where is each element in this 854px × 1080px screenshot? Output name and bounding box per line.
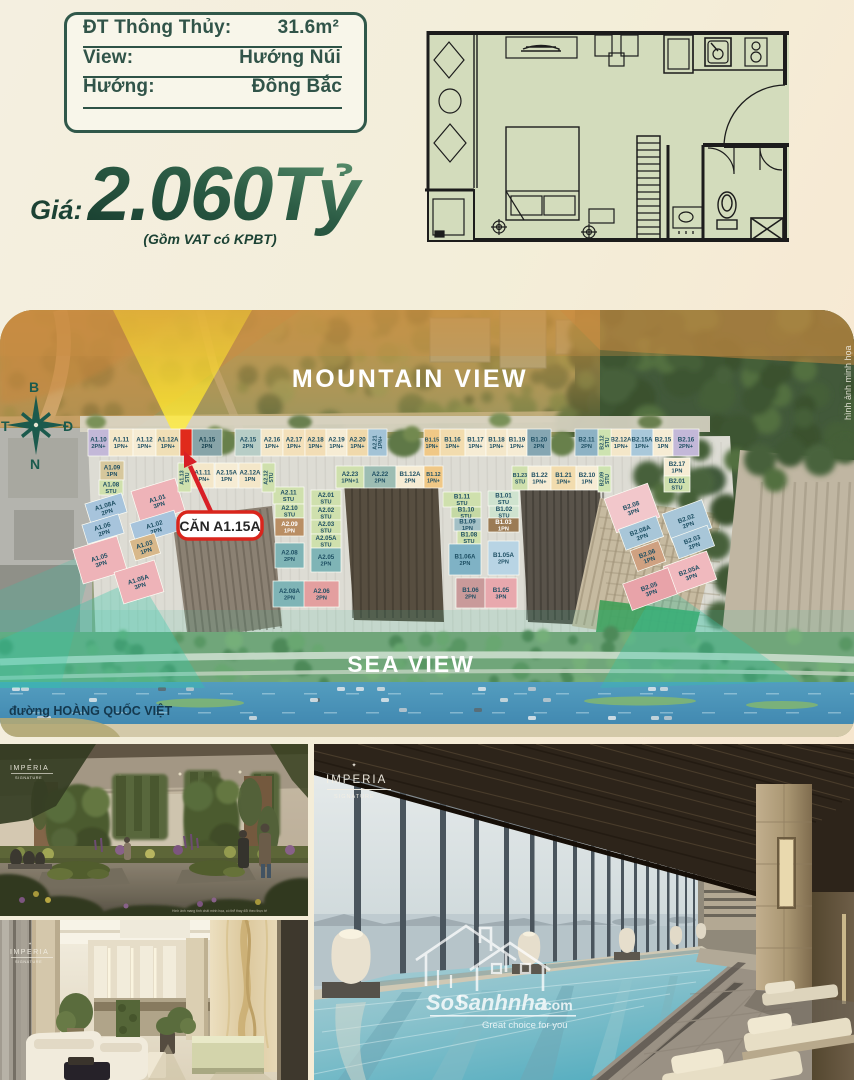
svg-text:.com: .com (540, 997, 573, 1013)
svg-text:1PN: 1PN (245, 477, 256, 483)
svg-text:B1.15: B1.15 (425, 438, 439, 444)
svg-text:B1.09: B1.09 (459, 519, 476, 526)
svg-text:SoSanhnha: SoSanhnha (426, 990, 547, 1015)
svg-text:A2.03: A2.03 (318, 521, 335, 528)
svg-text:A2.23: A2.23 (342, 471, 359, 478)
svg-text:2PN: 2PN (375, 479, 386, 485)
svg-text:A2.19: A2.19 (328, 437, 345, 444)
svg-text:B1.03: B1.03 (495, 519, 512, 526)
svg-text:B1.08: B1.08 (461, 532, 478, 539)
svg-text:B2.12A: B2.12A (611, 437, 633, 444)
svg-text:B1.18: B1.18 (488, 437, 505, 444)
svg-text:SIGNATURE: SIGNATURE (334, 794, 375, 800)
svg-text:2PN+: 2PN+ (679, 444, 694, 450)
svg-text:A2.12A: A2.12A (240, 470, 262, 477)
svg-text:B1.21: B1.21 (555, 472, 572, 479)
svg-text:2PN: 2PN (534, 444, 545, 450)
svg-text:B2.11: B2.11 (578, 437, 595, 444)
svg-text:1PN+1: 1PN+1 (341, 479, 358, 485)
svg-text:2PN: 2PN (316, 596, 327, 602)
svg-text:2PN: 2PN (465, 595, 476, 601)
svg-text:✦: ✦ (351, 762, 356, 769)
svg-text:A2.20: A2.20 (349, 437, 366, 444)
svg-text:1PN+: 1PN+ (510, 444, 525, 450)
svg-text:1PN+: 1PN+ (378, 436, 384, 449)
svg-text:STU: STU (320, 515, 331, 521)
svg-text:1PN: 1PN (658, 444, 669, 450)
svg-text:A1.08: A1.08 (103, 482, 120, 489)
svg-text:2PN: 2PN (284, 596, 295, 602)
svg-text:A2.10: A2.10 (281, 505, 298, 512)
svg-text:1PN: 1PN (221, 477, 232, 483)
svg-text:B1.06A: B1.06A (455, 554, 477, 561)
svg-text:2.060Tỷ: 2.060Tỷ (86, 152, 363, 237)
svg-text:1PN+: 1PN+ (468, 444, 483, 450)
svg-text:B2.15A: B2.15A (632, 437, 654, 444)
svg-text:CĂN A1.15A: CĂN A1.15A (179, 518, 260, 534)
svg-text:A2.17: A2.17 (286, 437, 303, 444)
svg-text:1PN+: 1PN+ (114, 444, 129, 450)
svg-text:đường HOÀNG QUỐC VIỆT: đường HOÀNG QUỐC VIỆT (9, 703, 172, 718)
svg-text:A2.22: A2.22 (372, 471, 389, 478)
svg-text:1PN+: 1PN+ (532, 480, 547, 486)
svg-text:1PN+: 1PN+ (635, 444, 650, 450)
svg-text:SIGNATURE: SIGNATURE (15, 776, 42, 780)
svg-text:A2.15A: A2.15A (216, 470, 238, 477)
svg-text:A2.02: A2.02 (318, 507, 335, 514)
svg-text:B1.02: B1.02 (496, 506, 513, 513)
svg-text:STU: STU (605, 474, 611, 484)
svg-text:A1.10: A1.10 (90, 437, 107, 444)
svg-text:B1.22: B1.22 (531, 472, 548, 479)
svg-text:SIGNATURE: SIGNATURE (15, 960, 42, 964)
svg-text:2PN+: 2PN+ (91, 444, 106, 450)
svg-text:2PN: 2PN (581, 444, 592, 450)
svg-text:Great choice for you: Great choice for you (482, 1020, 568, 1031)
svg-text:A2.05: A2.05 (318, 554, 335, 561)
svg-text:N: N (30, 456, 40, 472)
svg-text:A2.18: A2.18 (307, 437, 324, 444)
svg-text:1PN+: 1PN+ (427, 479, 440, 485)
svg-text:hình ảnh minh họa: hình ảnh minh họa (843, 345, 853, 420)
svg-text:B1.19: B1.19 (509, 437, 526, 444)
svg-text:A1.09: A1.09 (104, 465, 121, 472)
svg-text:STU: STU (320, 543, 331, 549)
svg-text:2PN: 2PN (498, 560, 509, 566)
svg-text:MOUNTAIN VIEW: MOUNTAIN VIEW (292, 365, 528, 393)
svg-text:(Gồm VAT có KPBT): (Gồm VAT có KPBT) (143, 231, 277, 247)
svg-text:A1.11: A1.11 (194, 470, 211, 477)
svg-text:A1.15: A1.15 (199, 437, 216, 444)
svg-text:1PN+: 1PN+ (329, 444, 344, 450)
svg-text:STU: STU (283, 497, 294, 503)
svg-text:1PN+: 1PN+ (350, 444, 365, 450)
svg-text:Hình ảnh mang tính chất minh h: Hình ảnh mang tính chất minh họa, có thể… (172, 909, 267, 913)
svg-text:Giá:: Giá: (30, 195, 83, 225)
svg-text:A2.06: A2.06 (313, 588, 330, 595)
svg-text:IMPERIA: IMPERIA (10, 765, 49, 772)
svg-text:1PN+: 1PN+ (137, 444, 152, 450)
svg-text:B2.17: B2.17 (669, 461, 686, 468)
svg-text:B1.11: B1.11 (454, 494, 471, 501)
svg-text:B1.16: B1.16 (444, 437, 461, 444)
svg-text:A2.08A: A2.08A (279, 588, 301, 595)
svg-text:A2.15: A2.15 (240, 437, 257, 444)
svg-text:B1.05: B1.05 (493, 587, 510, 594)
svg-text:A1.12A: A1.12A (158, 437, 180, 444)
svg-text:2PN: 2PN (243, 444, 254, 450)
svg-text:STU: STU (269, 472, 275, 482)
svg-text:A2.05A: A2.05A (316, 535, 338, 542)
svg-text:2PN: 2PN (321, 562, 332, 568)
svg-text:1PN+: 1PN+ (489, 444, 504, 450)
svg-text:A2.09: A2.09 (281, 521, 298, 528)
svg-text:B2.16: B2.16 (678, 437, 695, 444)
svg-text:1PN: 1PN (672, 469, 683, 475)
svg-text:B1.10: B1.10 (458, 507, 475, 514)
svg-text:STU: STU (605, 437, 611, 447)
svg-text:B1.12: B1.12 (426, 472, 440, 478)
svg-text:STU: STU (185, 472, 191, 482)
svg-text:B2.15: B2.15 (655, 437, 672, 444)
svg-text:B1.20: B1.20 (531, 437, 548, 444)
svg-text:STU: STU (515, 480, 525, 486)
svg-text:B1.01: B1.01 (495, 493, 512, 500)
svg-text:A1.12: A1.12 (136, 437, 153, 444)
svg-text:B2.01: B2.01 (669, 478, 686, 485)
svg-text:B1.12A: B1.12A (400, 471, 422, 478)
svg-text:A2.01: A2.01 (318, 492, 335, 499)
svg-text:STU: STU (671, 486, 682, 492)
svg-text:2PN: 2PN (405, 479, 416, 485)
svg-text:A2.11: A2.11 (280, 490, 297, 497)
svg-text:1PN+: 1PN+ (556, 480, 571, 486)
svg-text:SEA VIEW: SEA VIEW (347, 651, 475, 677)
svg-text:A1.11: A1.11 (113, 437, 130, 444)
svg-text:B1.05A: B1.05A (493, 552, 515, 559)
svg-text:STU: STU (320, 529, 331, 535)
svg-text:1PN: 1PN (582, 480, 593, 486)
svg-text:1PN+: 1PN+ (265, 444, 280, 450)
svg-text:1PN+: 1PN+ (614, 444, 629, 450)
svg-text:1PN+: 1PN+ (308, 444, 323, 450)
svg-text:B1.23: B1.23 (513, 473, 527, 479)
svg-text:1PN: 1PN (498, 527, 509, 533)
svg-text:1PN+: 1PN+ (161, 444, 176, 450)
svg-text:IMPERIA: IMPERIA (326, 774, 387, 786)
svg-text:2PN: 2PN (284, 557, 295, 563)
svg-text:1PN: 1PN (284, 529, 295, 535)
svg-text:IMPERIA: IMPERIA (10, 949, 49, 956)
svg-text:STU: STU (320, 500, 331, 506)
svg-text:2PN: 2PN (460, 561, 471, 567)
svg-text:B: B (29, 379, 39, 395)
svg-text:3PN: 3PN (496, 595, 507, 601)
svg-text:Đ: Đ (63, 418, 73, 434)
svg-text:2PN: 2PN (202, 444, 213, 450)
svg-text:A2.08: A2.08 (281, 550, 298, 557)
svg-text:1PN: 1PN (107, 472, 118, 478)
svg-text:STU: STU (105, 489, 116, 495)
svg-text:1PN+: 1PN+ (287, 444, 302, 450)
svg-text:B2.10: B2.10 (579, 472, 596, 479)
svg-text:A2.16: A2.16 (264, 437, 281, 444)
svg-text:1PN+: 1PN+ (445, 444, 460, 450)
svg-text:STU: STU (284, 513, 295, 519)
svg-text:1PN+: 1PN+ (426, 444, 439, 450)
svg-text:B1.06: B1.06 (462, 587, 479, 594)
svg-text:B1.17: B1.17 (467, 437, 484, 444)
svg-text:T: T (1, 418, 10, 434)
